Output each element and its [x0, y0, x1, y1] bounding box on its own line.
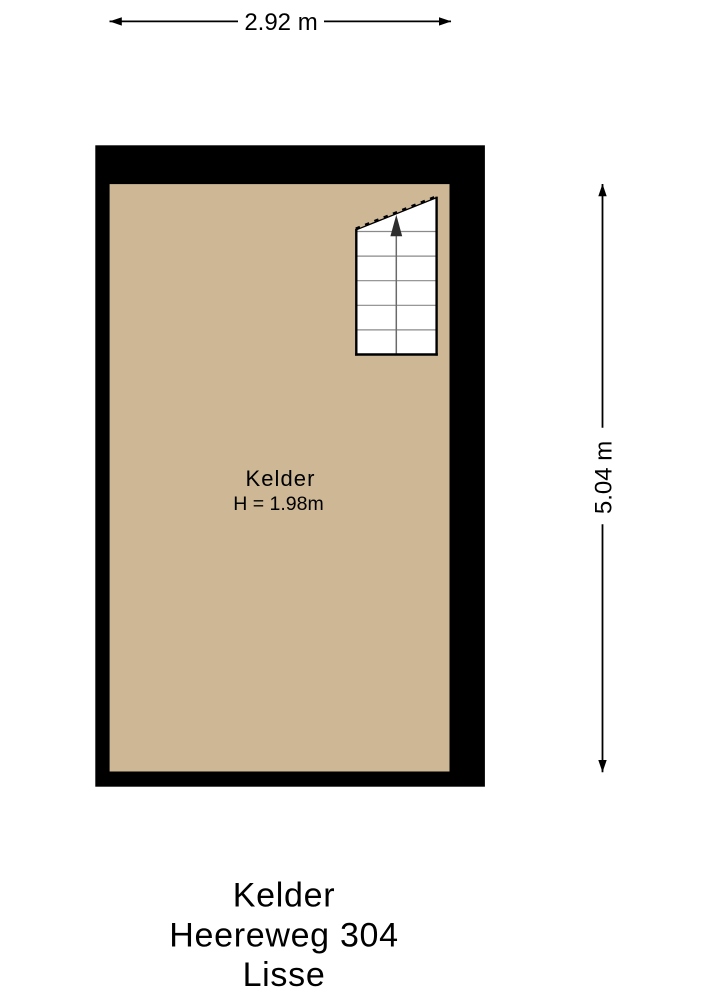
svg-text:Lisse: Lisse	[243, 956, 326, 994]
svg-text:Heereweg 304: Heereweg 304	[169, 917, 399, 955]
svg-text:Kelder: Kelder	[246, 466, 316, 491]
svg-text:2.92 m: 2.92 m	[244, 9, 317, 36]
svg-text:5.04 m: 5.04 m	[590, 441, 617, 514]
svg-text:Kelder: Kelder	[233, 876, 335, 914]
svg-text:H = 1.98m: H = 1.98m	[233, 493, 324, 515]
